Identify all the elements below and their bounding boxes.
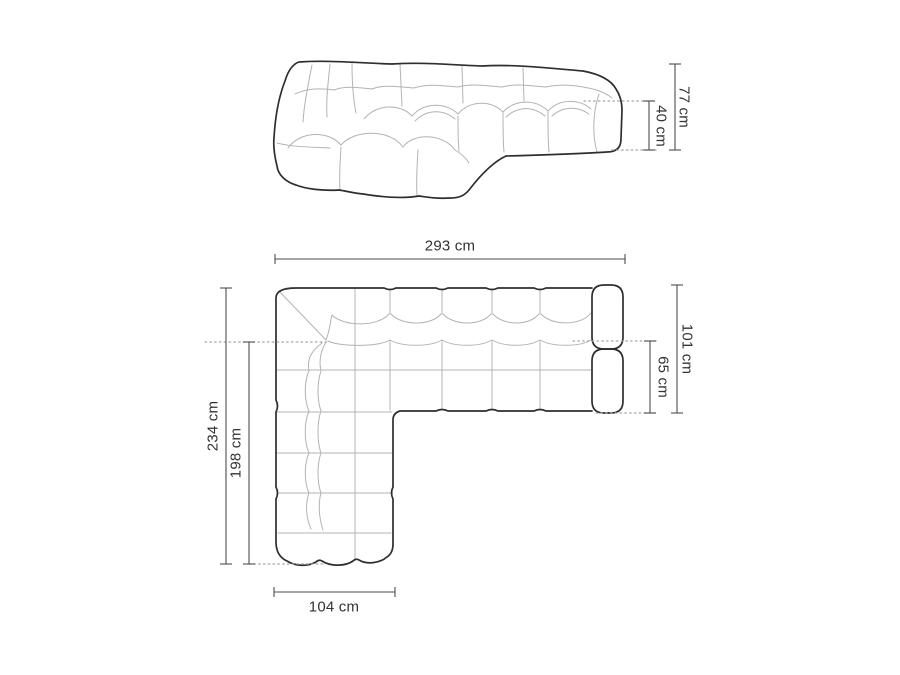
total-height-label: 77 cm bbox=[677, 86, 692, 128]
right-depth-label: 101 cm bbox=[680, 324, 695, 374]
left-depth-label: 234 cm bbox=[206, 401, 221, 451]
total-width-dimension-line bbox=[275, 254, 625, 264]
left-inner-depth-dimension-line bbox=[243, 342, 255, 564]
top-view-sofa-outline bbox=[276, 288, 592, 565]
front-view-cushion-seams bbox=[277, 63, 612, 195]
seat-height-label: 40 cm bbox=[654, 105, 669, 147]
sofa-diagram-artwork bbox=[0, 0, 900, 675]
right-seat-depth-label: 65 cm bbox=[656, 356, 671, 398]
top-view-cushion-seams bbox=[277, 289, 592, 559]
front-view-drawing bbox=[274, 61, 622, 198]
front-view-sofa-outline bbox=[274, 61, 622, 198]
chaise-width-label: 104 cm bbox=[309, 600, 359, 615]
total-width-label: 293 cm bbox=[425, 239, 475, 254]
top-view-armrest-lower bbox=[592, 349, 623, 413]
left-depth-dimension-line bbox=[220, 288, 232, 564]
left-inner-depth-label: 198 cm bbox=[229, 428, 244, 478]
top-view-drawing bbox=[276, 285, 623, 565]
dimension-diagram: 77 cm 40 cm 293 cm 101 cm 65 cm 234 cm 1… bbox=[0, 0, 900, 675]
top-view-armrest-upper bbox=[592, 285, 623, 349]
chaise-width-dimension-line bbox=[274, 587, 395, 597]
